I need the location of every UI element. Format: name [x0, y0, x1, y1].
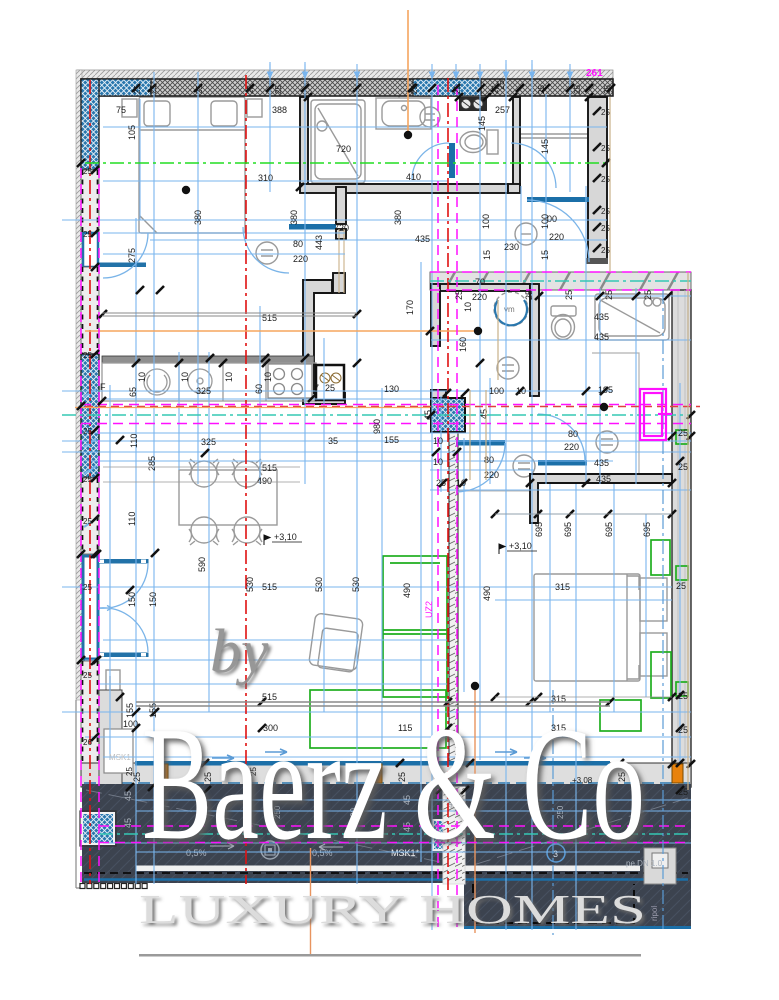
- svg-text:695: 695: [534, 522, 544, 537]
- svg-text:25: 25: [274, 85, 283, 94]
- svg-text:590: 590: [197, 557, 207, 572]
- svg-text:380: 380: [193, 210, 203, 225]
- svg-text:45: 45: [479, 409, 489, 419]
- svg-text:145: 145: [540, 139, 550, 154]
- svg-text:10: 10: [137, 372, 147, 382]
- svg-text:100: 100: [481, 214, 491, 229]
- svg-text:25: 25: [83, 230, 92, 239]
- svg-text:by: by: [210, 618, 269, 686]
- svg-text:720: 720: [336, 144, 351, 154]
- svg-text:100: 100: [489, 386, 504, 396]
- svg-text:25: 25: [678, 691, 688, 701]
- svg-text:380: 380: [393, 210, 403, 225]
- svg-text:25: 25: [83, 583, 92, 592]
- svg-text:25: 25: [601, 144, 610, 153]
- svg-text:25: 25: [676, 581, 686, 591]
- svg-text:285: 285: [147, 456, 157, 471]
- svg-text:220: 220: [293, 254, 308, 264]
- svg-text:695: 695: [563, 522, 573, 537]
- svg-text:25: 25: [601, 246, 610, 255]
- svg-text:25: 25: [603, 85, 612, 94]
- svg-text:490: 490: [257, 476, 272, 486]
- svg-text:45: 45: [423, 410, 433, 420]
- svg-text:25: 25: [454, 290, 464, 300]
- svg-text:7: 7: [314, 383, 319, 393]
- svg-text:435: 435: [594, 332, 609, 342]
- svg-text:105: 105: [127, 125, 137, 140]
- svg-text:261: 261: [586, 68, 603, 79]
- svg-text:80: 80: [293, 239, 303, 249]
- svg-text:25: 25: [678, 462, 688, 472]
- svg-text:LUXURY HOMES: LUXURY HOMES: [139, 886, 646, 932]
- svg-text:490: 490: [402, 583, 412, 598]
- svg-text:65: 65: [128, 387, 138, 397]
- svg-text:10: 10: [456, 478, 466, 488]
- svg-text:25: 25: [524, 290, 534, 300]
- svg-text:170: 170: [405, 300, 415, 315]
- svg-text:10: 10: [180, 372, 190, 382]
- svg-text:25: 25: [678, 725, 688, 735]
- svg-text:25: 25: [83, 351, 92, 360]
- svg-text:100: 100: [540, 214, 550, 229]
- svg-text:+3,10: +3,10: [509, 541, 532, 551]
- svg-text:Baerz & Co: Baerz & Co: [142, 694, 645, 874]
- svg-text:150: 150: [148, 592, 158, 607]
- svg-text:15: 15: [540, 250, 550, 260]
- svg-text:25: 25: [246, 85, 255, 94]
- svg-text:10: 10: [433, 436, 443, 446]
- svg-text:25: 25: [133, 85, 142, 94]
- svg-text:325: 325: [196, 386, 211, 396]
- svg-text:257: 257: [495, 105, 510, 115]
- svg-text:UZ2: UZ2: [424, 601, 434, 618]
- svg-text:25: 25: [195, 85, 204, 94]
- svg-text:110: 110: [127, 512, 137, 526]
- svg-text:435: 435: [594, 312, 609, 322]
- svg-text:155: 155: [125, 703, 135, 718]
- svg-text:25: 25: [604, 290, 614, 300]
- svg-text:10: 10: [516, 386, 526, 396]
- svg-text:435: 435: [596, 474, 611, 484]
- svg-text:25: 25: [125, 767, 134, 776]
- svg-text:443: 443: [314, 235, 324, 250]
- svg-text:26: 26: [83, 738, 92, 747]
- svg-text:695: 695: [642, 522, 652, 537]
- svg-text:230: 230: [504, 242, 519, 252]
- svg-text:155: 155: [384, 435, 399, 445]
- svg-text:515: 515: [262, 582, 277, 592]
- svg-text:380: 380: [289, 210, 299, 225]
- svg-text:160: 160: [458, 337, 468, 352]
- svg-text:10: 10: [263, 372, 273, 382]
- svg-text:220: 220: [472, 292, 487, 302]
- svg-text:25: 25: [436, 478, 446, 488]
- svg-text:MSK1: MSK1: [109, 753, 131, 762]
- svg-text:70: 70: [475, 277, 485, 287]
- svg-text:15: 15: [482, 250, 492, 260]
- svg-text:25: 25: [491, 85, 500, 94]
- svg-text:25: 25: [453, 85, 462, 94]
- svg-text:25: 25: [149, 85, 158, 94]
- svg-text:130: 130: [384, 384, 399, 394]
- svg-text:25: 25: [564, 290, 574, 300]
- svg-text:75: 75: [116, 105, 126, 115]
- svg-text:25: 25: [678, 428, 688, 438]
- svg-text:10: 10: [433, 457, 443, 467]
- svg-text:435: 435: [415, 234, 430, 244]
- svg-text:490: 490: [482, 586, 492, 601]
- svg-text:435: 435: [594, 458, 609, 468]
- svg-text:60: 60: [254, 384, 264, 394]
- svg-text:25: 25: [83, 671, 92, 680]
- svg-text:150: 150: [127, 592, 137, 607]
- svg-text:35: 35: [328, 436, 338, 446]
- svg-text:220: 220: [549, 232, 564, 242]
- svg-text:25: 25: [83, 167, 92, 176]
- svg-text:720: 720: [334, 223, 349, 233]
- svg-text:530: 530: [245, 577, 255, 592]
- svg-text:980: 980: [372, 419, 382, 434]
- svg-text:10: 10: [463, 302, 473, 312]
- svg-text:25: 25: [537, 85, 546, 94]
- svg-text:25: 25: [83, 475, 92, 484]
- svg-text:220: 220: [564, 442, 579, 452]
- svg-text:80: 80: [568, 429, 578, 439]
- svg-text:100: 100: [123, 719, 138, 729]
- svg-text:315: 315: [555, 582, 570, 592]
- svg-text:530: 530: [314, 577, 324, 592]
- svg-text:F: F: [100, 382, 106, 392]
- svg-text:25: 25: [643, 290, 653, 300]
- svg-text:25: 25: [601, 108, 610, 117]
- svg-text:695: 695: [604, 522, 614, 537]
- svg-text:325: 325: [201, 437, 216, 447]
- svg-text:25: 25: [410, 85, 419, 94]
- svg-text:25: 25: [678, 787, 688, 797]
- svg-text:25: 25: [601, 224, 610, 233]
- svg-text:25: 25: [601, 207, 610, 216]
- svg-text:515: 515: [262, 463, 277, 473]
- svg-text:515: 515: [262, 313, 277, 323]
- svg-text:195: 195: [598, 385, 613, 395]
- svg-text:45: 45: [123, 791, 133, 801]
- svg-text:25: 25: [601, 175, 610, 184]
- svg-text:145: 145: [477, 116, 487, 131]
- svg-text:25: 25: [573, 85, 582, 94]
- svg-text:275: 275: [127, 248, 137, 263]
- svg-text:25: 25: [83, 427, 92, 436]
- svg-text:388: 388: [272, 105, 287, 115]
- svg-text:25: 25: [83, 517, 92, 526]
- svg-text:+3,10: +3,10: [274, 532, 297, 542]
- svg-text:410: 410: [406, 172, 421, 182]
- svg-text:310: 310: [258, 173, 273, 183]
- svg-text:110: 110: [129, 434, 139, 448]
- svg-text:530: 530: [351, 577, 361, 592]
- svg-text:10: 10: [224, 372, 234, 382]
- svg-text:ripol: ripol: [650, 906, 659, 921]
- svg-text:25: 25: [325, 383, 335, 393]
